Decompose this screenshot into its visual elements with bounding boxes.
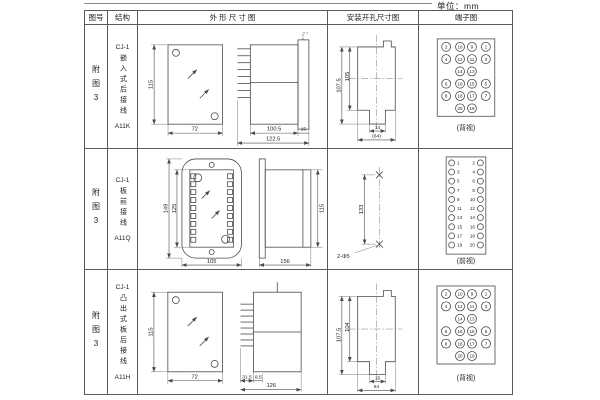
model-label-row1: A11K [115, 123, 130, 130]
terminal-number: 7 [485, 94, 488, 99]
terminal-5 [449, 178, 455, 184]
install-drawing-row3: 107.5 104 16 64 [328, 270, 418, 395]
terminal-block [228, 229, 233, 234]
dim-body-depth: 100.5 [267, 127, 281, 133]
dim-plate-height: 149 [164, 204, 170, 214]
outline-cell-row2: 149 125 105 156 115 [138, 149, 328, 270]
terminal-block [191, 221, 196, 226]
terminal-block [191, 190, 196, 195]
terminal-block [191, 213, 196, 218]
terminal-diagram-row2: (前视) 1234567891011121314151617181920 [419, 149, 513, 269]
terminal-number: 20 [457, 354, 463, 359]
dimensions: 115 72 31.5 9.5 126 [148, 292, 301, 391]
dim-hole-spacing: 133 [359, 205, 365, 215]
figure-no-row2: 附图3 [91, 188, 102, 231]
structure-cell-row2: CJ-1 板前接线 A11Q [108, 149, 138, 270]
dim-install-opening-width: 64 [374, 384, 380, 390]
series-label-row2: CJ-1 [116, 177, 130, 184]
terminal-15 [449, 224, 455, 230]
terminal-number: 6 [445, 81, 448, 86]
terminal-number: 11 [470, 57, 475, 62]
outline-drawing-row3: 115 72 31.5 9.5 126 [138, 270, 327, 395]
terminal-number: 1 [485, 45, 488, 50]
terminal-1 [449, 160, 455, 166]
terminal-number: 20 [458, 106, 464, 111]
view-label-row3: (背视) [457, 373, 476, 382]
view-label-row1: (背视) [457, 123, 476, 132]
terminal-number: 18 [458, 94, 464, 99]
dimensions: 149 125 105 156 115 [164, 159, 326, 267]
figure-no-cell-row2: 附图3 [85, 149, 108, 270]
dim-plate-width: 105 [207, 259, 217, 265]
terminal-block [228, 198, 233, 203]
terminal-7 [449, 187, 455, 193]
terminal-18 [477, 233, 483, 239]
dim-overall-depth: 126 [266, 383, 276, 389]
terminal-number: 12 [457, 304, 463, 309]
figure-no-row1: 附图3 [91, 65, 102, 108]
structure-label-row3: 凸出式板后接线 [118, 294, 128, 368]
terminal-number: 5 [485, 81, 488, 86]
figure-no-cell-row3: 附图3 [85, 270, 108, 395]
terminal-number: 3 [457, 170, 460, 175]
header-terminal-label: 端子图 [455, 12, 478, 23]
terminal-14 [477, 215, 483, 221]
view-label-row2: (前视) [457, 256, 476, 265]
terminal-number: 4 [445, 304, 448, 309]
header-figure-no: 图号 [85, 11, 108, 25]
terminal-number: 10 [457, 292, 463, 297]
terminal-block [191, 206, 196, 211]
install-drawing-row2: 133 2-Φ5 [328, 149, 418, 269]
model-label-row3: A11H [115, 374, 131, 381]
terminal-number: 6 [445, 329, 448, 334]
outline-drawing-row1: 115 72 100.5 15 122.5 [138, 25, 327, 148]
dim-step-depth: 9.5 [255, 374, 262, 380]
install-cell-row2: 133 2-Φ5 [328, 149, 419, 270]
document-page: 单位：mm 图号 结构 外 形 尺 寸 图 安装开孔尺寸图 端子图 附图3 CJ… [0, 0, 600, 400]
terminal-number: 11 [457, 206, 462, 211]
dim-pin-depth: 31.5 [242, 374, 252, 380]
dim-front-width: 72 [191, 374, 197, 380]
dim-side-height: 115 [320, 204, 326, 213]
dim-install-outer-height: 107.5 [336, 78, 342, 92]
structure-cell-row3: CJ-1 凸出式板后接线 A11H [108, 270, 138, 395]
terminal-number: 12 [470, 206, 476, 211]
dim-front-width: 72 [192, 127, 198, 133]
terminal-number: 6 [472, 179, 475, 184]
dim-install-notch-width: 16 [375, 375, 381, 381]
figure-no-row3: 附图3 [91, 311, 102, 354]
terminal-number: 16 [470, 224, 476, 229]
terminal-number: 8 [472, 188, 475, 193]
terminal-number: 8 [445, 94, 448, 99]
terminal-number: 17 [469, 341, 475, 346]
side-view [259, 159, 311, 258]
header-structure: 结构 [108, 11, 138, 25]
terminal-diagram-row3: (背视) 2109141211314136161558181772019 [419, 270, 513, 395]
hanging-hook [303, 33, 308, 40]
spec-table: 图号 结构 外 形 尺 寸 图 安装开孔尺寸图 端子图 附图3 CJ-1 嵌入式… [84, 10, 513, 395]
terminal-number: 5 [457, 179, 460, 184]
outline-cell-row1: 115 72 100.5 15 122.5 [138, 25, 328, 149]
terminal-number: 10 [470, 197, 476, 202]
dim-window-height: 125 [172, 204, 178, 214]
terminal-4 [477, 169, 483, 175]
terminal-number: 7 [457, 188, 460, 193]
terminal-number: 2 [472, 160, 475, 165]
terminal-number: 16 [458, 81, 464, 86]
header-terminal: 端子图 [419, 11, 513, 25]
terminal-number: 20 [470, 243, 476, 248]
terminal-number: 2 [445, 45, 448, 50]
terminal-16 [477, 224, 483, 230]
terminal-cell-row2: (前视) 1234567891011121314151617181920 [419, 149, 513, 270]
terminal-number: 15 [469, 329, 475, 334]
terminal-number: 5 [485, 329, 488, 334]
terminal-block [228, 221, 233, 226]
terminal-number: 18 [457, 341, 463, 346]
terminal-number: 2 [445, 292, 448, 297]
terminal-number: 7 [485, 341, 488, 346]
terminal-19 [449, 242, 455, 248]
dim-install-opening-width: (64) [372, 134, 381, 140]
terminal-number: 9 [471, 292, 474, 297]
terminal-diagram-row1: (背视) 2109141211314136161558181772019 [419, 25, 513, 148]
terminal-10 [477, 196, 483, 202]
terminal-number: 1 [485, 292, 488, 297]
install-cell-row3: 107.5 104 16 64 [328, 270, 419, 395]
terminal-cell-row3: (背视) 2109141211314136161558181772019 [419, 270, 513, 395]
terminal-number: 13 [469, 317, 475, 322]
terminal-number: 19 [469, 354, 475, 359]
terminal-block [191, 229, 196, 234]
terminal-20 [477, 242, 483, 248]
front-view [168, 45, 223, 124]
figure-no-cell-row1: 附图3 [85, 25, 108, 149]
terminal-number: 14 [457, 317, 463, 322]
structure-label-row2: 板前接线 [118, 187, 128, 229]
series-label-row1: CJ-1 [116, 44, 130, 51]
terminal-number: 15 [457, 224, 463, 229]
terminal-2 [477, 160, 483, 166]
terminal-block [228, 190, 233, 195]
dim-side-depth: 156 [280, 259, 290, 265]
header-outline-label: 外 形 尺 寸 图 [210, 12, 256, 23]
terminal-number: 19 [457, 243, 463, 248]
outline-cell-row3: 115 72 31.5 9.5 126 [138, 270, 328, 395]
dim-install-inner-height: 104 [345, 321, 351, 331]
header-install-label: 安装开孔尺寸图 [347, 12, 400, 23]
model-label-row2: A11Q [114, 235, 130, 242]
header-structure-label: 结构 [115, 12, 130, 23]
terminal-number: 9 [471, 45, 474, 50]
terminal-13 [449, 215, 455, 221]
install-drawing-row1: 107.5 105 14 (64) [328, 25, 418, 148]
terminal-number: 17 [469, 94, 475, 99]
dim-install-outer-height: 107.5 [336, 328, 342, 342]
outline-drawing-row2: 149 125 105 156 115 [138, 149, 327, 269]
dim-flange-depth: 15 [301, 127, 307, 133]
terminal-number: 14 [458, 69, 464, 74]
terminal-number: 16 [457, 329, 463, 334]
terminal-3 [449, 169, 455, 175]
terminal-number: 3 [485, 57, 488, 62]
front-view [168, 292, 223, 372]
terminal-17 [449, 233, 455, 239]
dim-install-notch-width: 14 [375, 125, 381, 131]
terminal-11 [449, 206, 455, 212]
terminal-number: 19 [469, 106, 475, 111]
terminal-cell-row1: (背视) 2109141211314136161558181772019 [419, 25, 513, 149]
side-view [250, 33, 309, 129]
terminal-number: 15 [469, 81, 475, 86]
side-view [253, 282, 301, 372]
terminal-number: 11 [470, 304, 475, 309]
terminal-6 [477, 178, 483, 184]
structure-cell-row1: CJ-1 嵌入式后接线 A11K [108, 25, 138, 149]
terminal-number: 8 [445, 341, 448, 346]
terminal-block [228, 237, 233, 242]
terminal-block [228, 213, 233, 218]
terminal-number: 17 [457, 233, 463, 238]
terminal-12 [477, 206, 483, 212]
terminal-block [228, 174, 233, 179]
terminal-9 [449, 196, 455, 202]
header-figure-no-label: 图号 [89, 12, 104, 23]
terminal-block [228, 182, 233, 187]
header-install-dims: 安装开孔尺寸图 [328, 11, 419, 25]
terminal-number: 10 [458, 45, 464, 50]
terminal-number: 4 [472, 170, 475, 175]
terminal-number: 14 [470, 215, 476, 220]
series-label-row3: CJ-1 [116, 284, 130, 291]
terminal-number: 12 [458, 57, 464, 62]
dim-install-inner-height: 105 [345, 72, 351, 82]
hole-spec-label: 2-Φ5 [337, 254, 350, 260]
structure-label-row1: 嵌入式后接线 [118, 54, 128, 117]
terminal-block [191, 237, 196, 242]
terminal-number: 1 [457, 160, 460, 165]
terminal-number: 13 [457, 215, 463, 220]
terminal-8 [477, 187, 483, 193]
terminal-number: 13 [469, 69, 475, 74]
dim-front-height: 115 [149, 80, 155, 89]
terminal-number: 3 [485, 304, 488, 309]
dim-overall-depth: 122.5 [266, 137, 280, 143]
terminal-block [191, 198, 196, 203]
header-outline-dims: 外 形 尺 寸 图 [138, 11, 328, 25]
terminal-number: 9 [457, 197, 460, 202]
dim-front-height: 115 [148, 327, 154, 336]
dimensions: 115 72 100.5 15 122.5 [149, 45, 309, 146]
terminal-number: 18 [470, 233, 476, 238]
terminal-number: 4 [445, 57, 448, 62]
terminal-block [228, 206, 233, 211]
top-rule [84, 3, 432, 4]
terminal-block [191, 182, 196, 187]
install-cell-row1: 107.5 105 14 (64) [328, 25, 419, 149]
